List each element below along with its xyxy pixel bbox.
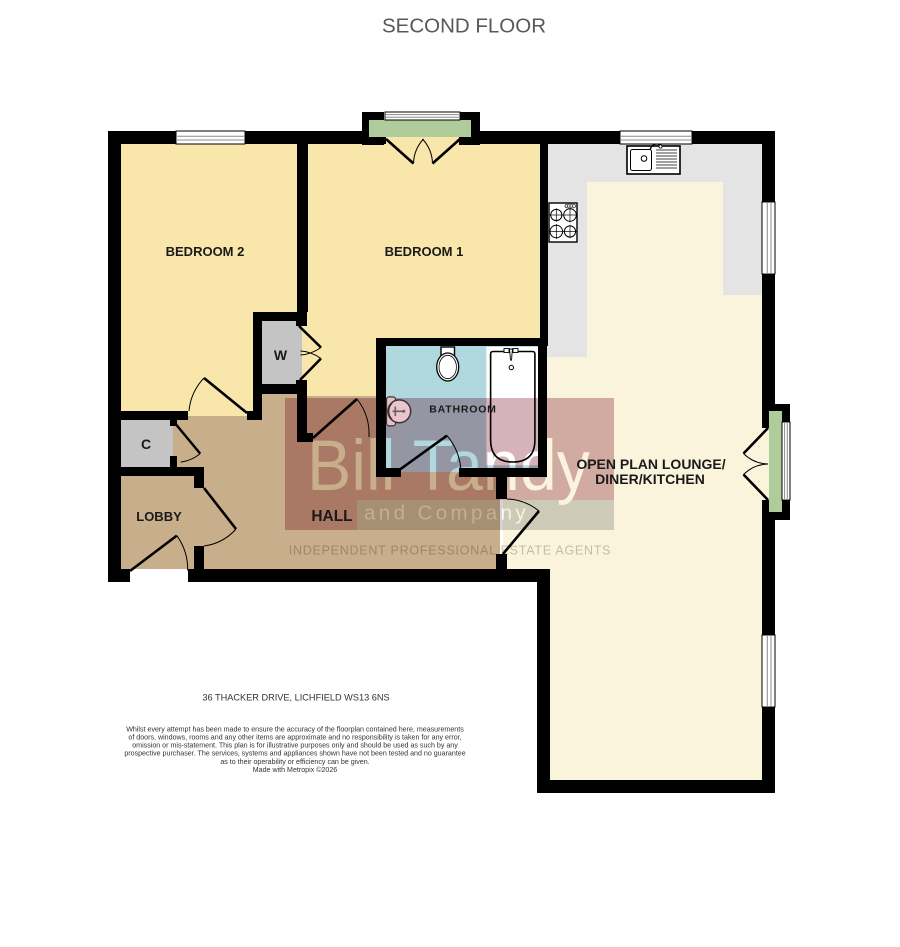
svg-text:W: W — [274, 347, 288, 363]
svg-text:HALL: HALL — [311, 508, 352, 525]
svg-text:Made with Metropix ©2026: Made with Metropix ©2026 — [253, 766, 338, 774]
svg-text:BATHROOM: BATHROOM — [429, 404, 496, 416]
svg-text:C: C — [141, 436, 151, 452]
svg-text:omission or mis-statement. Thi: omission or mis-statement. This plan is … — [132, 742, 458, 750]
svg-text:SECOND FLOOR: SECOND FLOOR — [382, 15, 546, 38]
svg-text:prospective purchaser. The ser: prospective purchaser. The services, sys… — [124, 750, 465, 758]
svg-text:36 THACKER DRIVE, LICHFIELD WS: 36 THACKER DRIVE, LICHFIELD WS13 6NS — [202, 693, 389, 703]
svg-text:INDEPENDENT PROFESSIONAL ESTAT: INDEPENDENT PROFESSIONAL ESTATE AGENTS — [289, 544, 612, 558]
svg-text:BEDROOM 2: BEDROOM 2 — [166, 244, 245, 259]
svg-text:as to their operability or eff: as to their operability or efficiency ca… — [220, 758, 369, 766]
svg-text:LOBBY: LOBBY — [136, 509, 182, 524]
svg-text:Whilst every attempt has been: Whilst every attempt has been made to en… — [126, 725, 464, 733]
svg-text:of doors, windows, rooms and a: of doors, windows, rooms and any other i… — [128, 734, 461, 742]
svg-text:DINER/KITCHEN: DINER/KITCHEN — [595, 471, 705, 487]
svg-text:BEDROOM 1: BEDROOM 1 — [385, 244, 464, 259]
svg-text:OPEN PLAN LOUNGE/: OPEN PLAN LOUNGE/ — [576, 456, 725, 472]
